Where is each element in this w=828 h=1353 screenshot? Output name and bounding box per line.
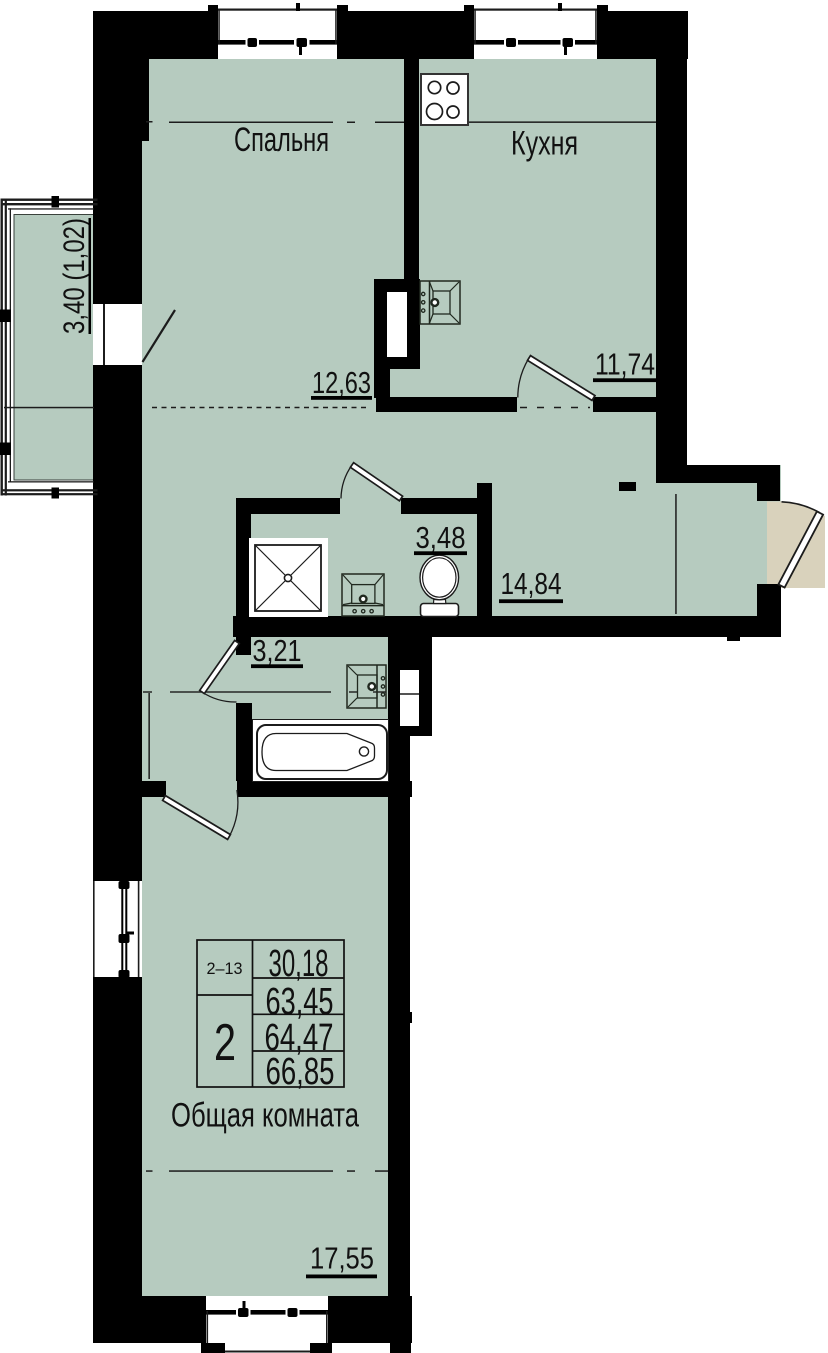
svg-text:14,84: 14,84 (501, 566, 562, 601)
svg-text:11,74: 11,74 (595, 347, 655, 382)
svg-text:Кухня: Кухня (511, 125, 578, 163)
svg-text:3,48: 3,48 (416, 520, 466, 555)
svg-text:2: 2 (214, 1014, 236, 1072)
svg-text:3,21: 3,21 (253, 633, 302, 668)
svg-text:17,55: 17,55 (310, 1241, 374, 1276)
svg-text:Спальня: Спальня (234, 121, 329, 159)
svg-text:2–13: 2–13 (207, 959, 243, 978)
svg-text:30,18: 30,18 (269, 943, 329, 985)
svg-text:Общая комната: Общая комната (171, 1097, 359, 1135)
svg-text:66,85: 66,85 (266, 1051, 335, 1093)
svg-text:12,63: 12,63 (312, 365, 371, 400)
svg-text:3,40 (1,02): 3,40 (1,02) (58, 218, 91, 334)
